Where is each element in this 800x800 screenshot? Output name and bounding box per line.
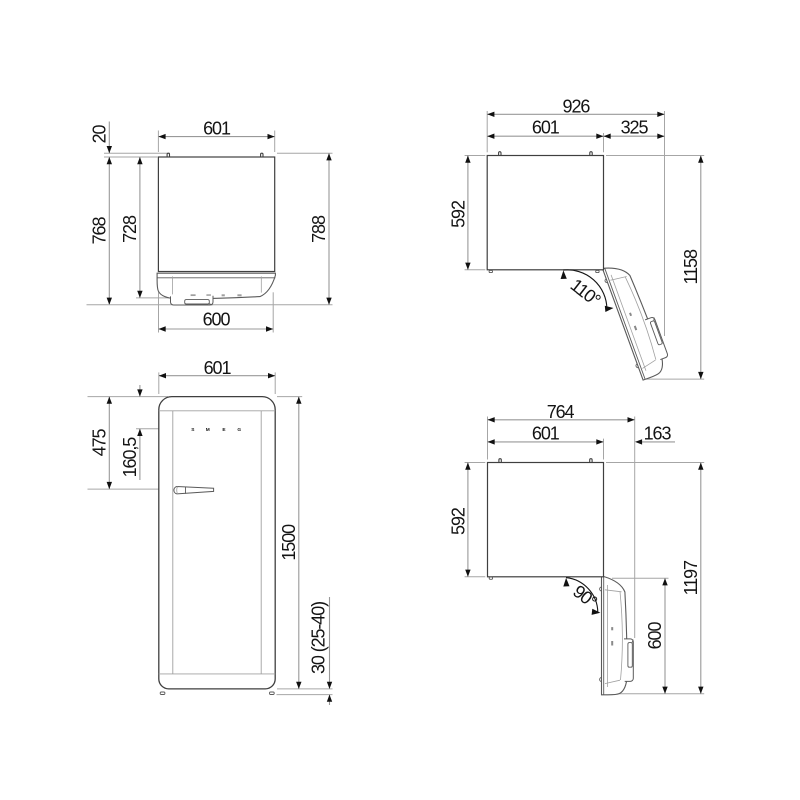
svg-text:764: 764	[547, 402, 575, 422]
svg-text:M: M	[206, 427, 210, 433]
svg-text:1158: 1158	[681, 249, 701, 284]
svg-text:30 (25-40): 30 (25-40)	[308, 602, 328, 674]
svg-text:592: 592	[448, 200, 468, 228]
svg-text:325: 325	[621, 118, 649, 138]
svg-text:768: 768	[90, 217, 110, 245]
svg-text:592: 592	[448, 507, 468, 535]
svg-text:600: 600	[645, 622, 665, 650]
svg-text:601: 601	[532, 118, 560, 138]
svg-text:160,5: 160,5	[120, 437, 140, 478]
svg-text:728: 728	[120, 215, 140, 243]
svg-text:600: 600	[203, 310, 231, 330]
svg-text:788: 788	[309, 215, 329, 243]
svg-text:1500: 1500	[279, 524, 299, 561]
svg-text:20: 20	[90, 125, 110, 144]
svg-text:1197: 1197	[681, 560, 701, 595]
svg-text:601: 601	[532, 424, 560, 444]
svg-text:G: G	[237, 427, 241, 433]
svg-text:601: 601	[203, 119, 231, 139]
svg-text:601: 601	[204, 358, 232, 378]
svg-text:163: 163	[644, 424, 672, 444]
svg-text:475: 475	[89, 428, 109, 456]
svg-text:926: 926	[563, 96, 591, 116]
